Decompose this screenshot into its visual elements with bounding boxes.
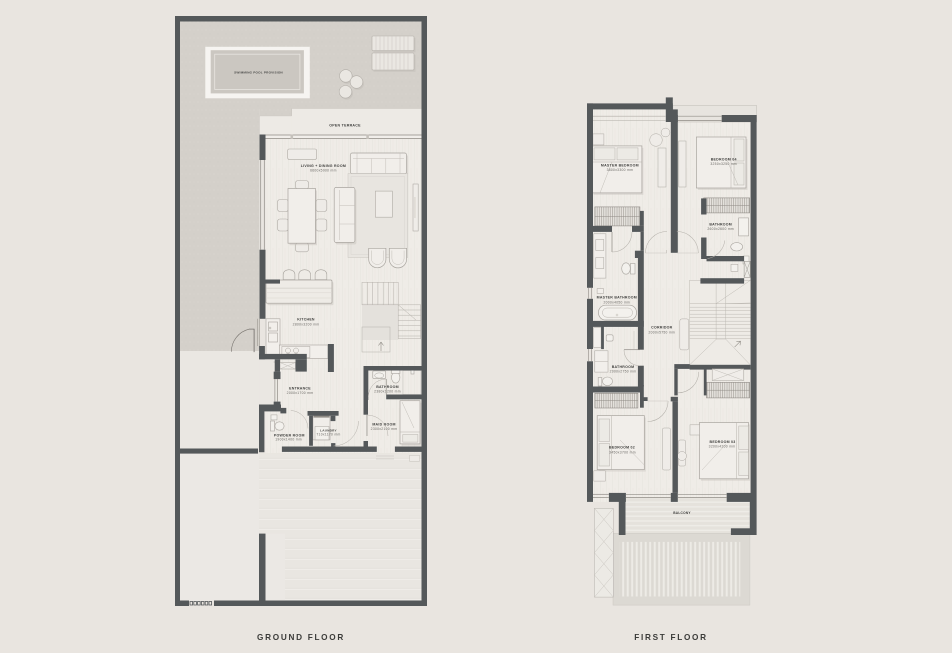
- svg-text:2000x1700 mm: 2000x1700 mm: [287, 391, 314, 395]
- svg-text:BEDROOM 02: BEDROOM 02: [609, 446, 635, 450]
- svg-text:2800x3200 mm: 2800x3200 mm: [293, 322, 320, 326]
- svg-text:OPEN TERRACE: OPEN TERRACE: [329, 123, 361, 127]
- svg-text:3450x3700 mm: 3450x3700 mm: [609, 450, 636, 454]
- svg-text:FIRST FLOOR: FIRST FLOOR: [634, 633, 708, 642]
- svg-text:BATHROOM: BATHROOM: [376, 385, 399, 389]
- svg-text:6600x5900 mm: 6600x5900 mm: [310, 169, 337, 173]
- svg-text:KITCHEN: KITCHEN: [297, 318, 315, 322]
- svg-text:ENTRANCE: ENTRANCE: [289, 386, 311, 390]
- svg-text:3800x3300 mm: 3800x3300 mm: [607, 168, 634, 172]
- svg-text:LIVING + DINING ROOM: LIVING + DINING ROOM: [301, 164, 346, 168]
- svg-text:CORRIDOR: CORRIDOR: [651, 325, 672, 329]
- svg-text:BEDROOM 04: BEDROOM 04: [711, 157, 737, 161]
- svg-text:3250x3250 mm: 3250x3250 mm: [710, 162, 737, 166]
- svg-text:MASTER BEDROOM: MASTER BEDROOM: [601, 163, 639, 167]
- svg-text:1900x1400 mm: 1900x1400 mm: [275, 438, 302, 442]
- svg-text:GROUND FLOOR: GROUND FLOOR: [257, 633, 345, 642]
- svg-text:BATHROOM: BATHROOM: [612, 365, 635, 369]
- svg-text:2000x4050 mm: 2000x4050 mm: [603, 300, 630, 304]
- svg-text:2000x5750 mm: 2000x5750 mm: [648, 330, 675, 334]
- svg-text:2000x2750 mm: 2000x2750 mm: [610, 370, 637, 374]
- svg-text:BATHROOM: BATHROOM: [709, 222, 732, 226]
- svg-text:2380x1200 mm: 2380x1200 mm: [374, 389, 401, 393]
- svg-text:SWIMMING POOL PROVISION: SWIMMING POOL PROVISION: [234, 71, 283, 75]
- svg-text:MASTER BATHROOM: MASTER BATHROOM: [597, 296, 637, 300]
- svg-text:2300x2100 mm: 2300x2100 mm: [371, 427, 398, 431]
- svg-text:710x1170 mm: 710x1170 mm: [316, 432, 340, 436]
- svg-text:BEDROOM 03: BEDROOM 03: [710, 440, 736, 444]
- svg-text:3200x4200 mm: 3200x4200 mm: [709, 445, 736, 449]
- svg-text:BALCONY: BALCONY: [673, 511, 691, 515]
- svg-text:2600x2600 mm: 2600x2600 mm: [707, 227, 734, 231]
